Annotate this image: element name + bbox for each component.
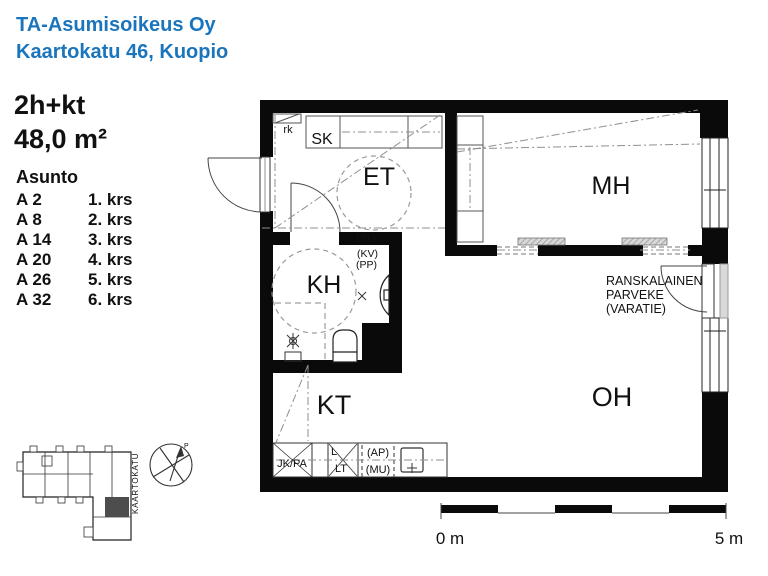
label-l: L <box>331 446 337 458</box>
balcony-line2: PARVEKE <box>606 288 664 302</box>
floor-plan: ET MH KH KT OH SK rk LTO (KV) (PP) JK/PA… <box>0 0 768 576</box>
street-label: KAARTOKATU <box>131 453 140 514</box>
room-label-mh: MH <box>592 172 631 200</box>
label-sk: SK <box>311 131 333 148</box>
toilet <box>333 330 357 362</box>
building-outline <box>23 452 131 540</box>
scale-end-label: 5 m <box>715 529 743 548</box>
label-rk: rk <box>283 124 293 136</box>
label-lto: LTO <box>356 233 375 245</box>
north-label: P <box>184 443 189 450</box>
bathroom-door <box>291 183 340 232</box>
scale-start-label: 0 m <box>436 529 464 548</box>
label-lt: LT <box>335 463 347 475</box>
window-oh <box>702 318 728 392</box>
balcony-line1: RANSKALAINEN <box>606 274 703 288</box>
floorplan-page: TA-Asumisoikeus Oy Kaartokatu 46, Kuopio… <box>0 0 768 576</box>
shower-mixer <box>285 333 301 361</box>
window-mh <box>702 138 728 228</box>
room-label-kh: KH <box>307 271 342 299</box>
shower-area <box>275 303 325 360</box>
apartment-location-marker <box>105 497 129 517</box>
balcony-label: RANSKALAINEN PARVEKE (VARATIE) <box>606 274 703 316</box>
entry-door <box>208 157 270 212</box>
scale-bar: 0 m 5 m <box>436 503 743 548</box>
balcony-door <box>661 264 728 318</box>
room-label-oh: OH <box>592 382 633 412</box>
room-label-kt: KT <box>317 390 352 420</box>
balcony-line3: (VARATIE) <box>606 302 666 316</box>
site-plan: KAARTOKATU <box>17 446 140 540</box>
label-jk-pa: JK/PA <box>277 458 307 470</box>
label-mu: (MU) <box>366 464 390 476</box>
label-ap: (AP) <box>367 447 389 459</box>
glazing-strip <box>622 238 667 245</box>
glazing-strip <box>518 238 565 245</box>
room-label-et: ET <box>363 163 395 191</box>
compass-icon: P <box>150 443 192 486</box>
label-pp: (PP) <box>356 259 377 271</box>
